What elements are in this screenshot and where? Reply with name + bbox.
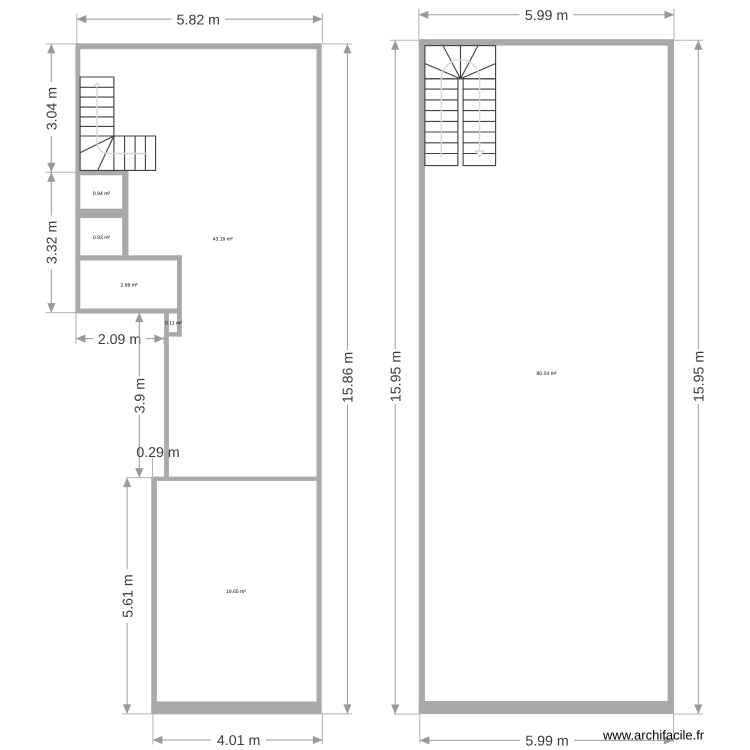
svg-text:15.86 m: 15.86 m [341,352,357,403]
svg-text:43.16 m²: 43.16 m² [213,237,233,243]
svg-text:5.82 m: 5.82 m [177,12,220,28]
svg-text:2.09 m: 2.09 m [98,332,141,348]
svg-text:0.94 m²: 0.94 m² [93,191,111,197]
svg-text:3.32 m: 3.32 m [45,221,61,264]
svg-text:3.9 m: 3.9 m [133,378,149,413]
svg-text:19.65 m²: 19.65 m² [226,589,246,595]
svg-text:90.04 m²: 90.04 m² [537,371,557,377]
svg-text:5.99 m: 5.99 m [525,734,568,750]
svg-text:3.04 m: 3.04 m [45,87,61,130]
svg-text:0.29 m: 0.29 m [136,445,179,461]
svg-text:5.99 m: 5.99 m [525,8,568,24]
svg-text:2.66 m²: 2.66 m² [120,282,138,288]
svg-text:0.11 m²: 0.11 m² [165,321,182,327]
svg-text:0.93 m²: 0.93 m² [93,235,111,241]
svg-text:15.95 m: 15.95 m [692,351,708,402]
svg-text:5.61 m: 5.61 m [120,574,136,617]
svg-text:4.01 m: 4.01 m [217,733,260,749]
svg-text:www.archifacile.fr: www.archifacile.fr [602,728,705,743]
svg-text:15.95 m: 15.95 m [388,351,404,402]
